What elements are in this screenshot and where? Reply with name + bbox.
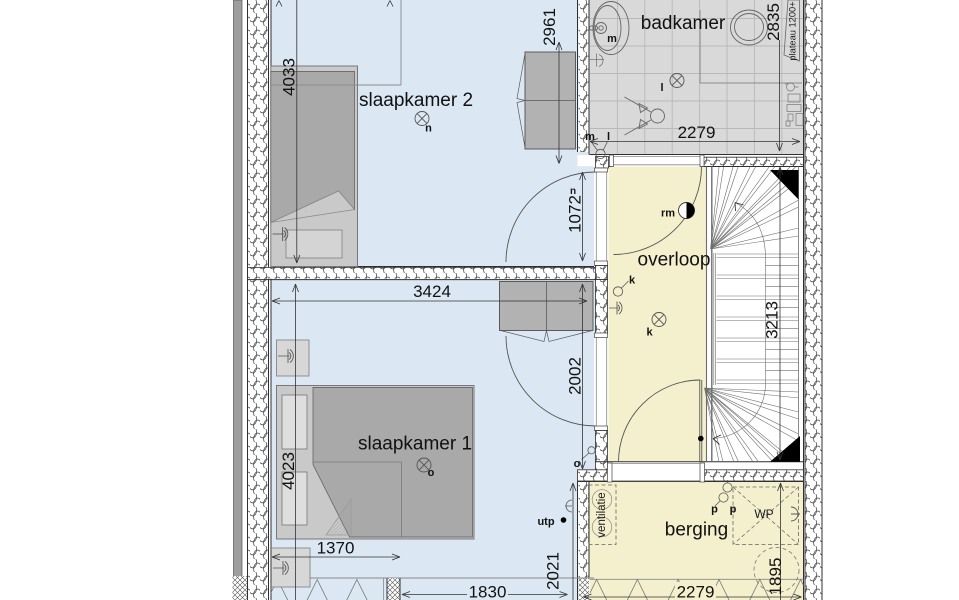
svg-text:slaapkamer 1: slaapkamer 1 (358, 434, 472, 455)
svg-text:1895: 1895 (766, 558, 785, 596)
svg-text:p: p (730, 504, 737, 516)
svg-text:p: p (711, 504, 718, 516)
svg-text:2279: 2279 (677, 583, 715, 600)
svg-text:plateau 1200+: plateau 1200+ (788, 1, 798, 60)
svg-text:badkamer: badkamer (641, 13, 726, 34)
svg-text:4023: 4023 (279, 452, 298, 490)
svg-text:o: o (574, 458, 581, 470)
svg-text:berging: berging (665, 520, 728, 541)
svg-text:1072: 1072 (566, 195, 585, 233)
svg-text:l: l (660, 82, 663, 94)
svg-text:l: l (607, 131, 610, 143)
svg-text:o: o (428, 467, 435, 479)
svg-text:2835: 2835 (764, 3, 783, 41)
svg-text:3213: 3213 (763, 301, 782, 339)
svg-text:m: m (585, 131, 595, 143)
svg-text:utp: utp (537, 516, 554, 528)
svg-text:4033: 4033 (280, 58, 299, 96)
svg-text:rm: rm (661, 208, 675, 220)
svg-text:n: n (570, 186, 576, 197)
svg-text:m: m (607, 33, 617, 45)
svg-text:k: k (646, 327, 653, 339)
svg-text:2021: 2021 (544, 552, 563, 590)
svg-text:3424: 3424 (413, 282, 451, 301)
svg-text:1370: 1370 (317, 539, 355, 558)
svg-text:n: n (425, 123, 432, 135)
svg-text:2279: 2279 (678, 123, 716, 142)
svg-text:2002: 2002 (566, 357, 585, 395)
svg-text:1830: 1830 (469, 583, 507, 600)
svg-text:2961: 2961 (540, 8, 559, 46)
svg-text:k: k (629, 275, 636, 287)
svg-text:slaapkamer 2: slaapkamer 2 (359, 90, 473, 111)
svg-text:ventilatie: ventilatie (596, 492, 608, 537)
svg-text:overloop: overloop (638, 250, 711, 271)
svg-text:WP: WP (754, 507, 773, 521)
